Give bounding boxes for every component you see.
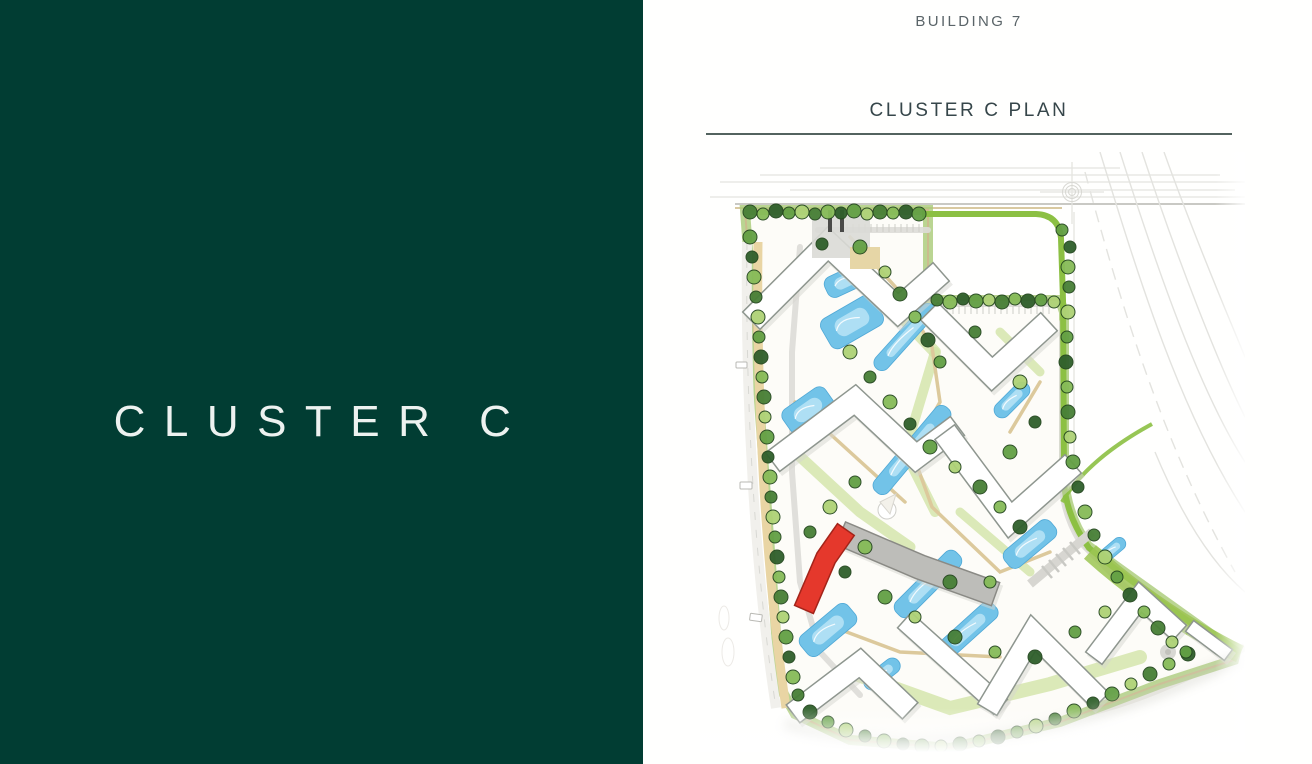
sign-icon — [736, 362, 747, 368]
vehicle-icon — [750, 613, 763, 622]
brochure-page: CLUSTER C BUILDING 7 CLUSTER C PLAN — [0, 0, 1312, 764]
heading-rule — [706, 133, 1232, 135]
site-plan-container — [700, 152, 1245, 752]
top-highway — [710, 168, 1245, 208]
left-panel: CLUSTER C — [0, 0, 643, 764]
vehicle-icon — [740, 482, 752, 489]
building-label: BUILDING 7 — [706, 13, 1232, 30]
cluster-c-site-plan — [700, 152, 1245, 752]
right-panel: BUILDING 7 CLUSTER C PLAN — [643, 0, 1312, 764]
cluster-title: CLUSTER C — [114, 397, 530, 447]
plan-heading: CLUSTER C PLAN — [706, 100, 1232, 122]
